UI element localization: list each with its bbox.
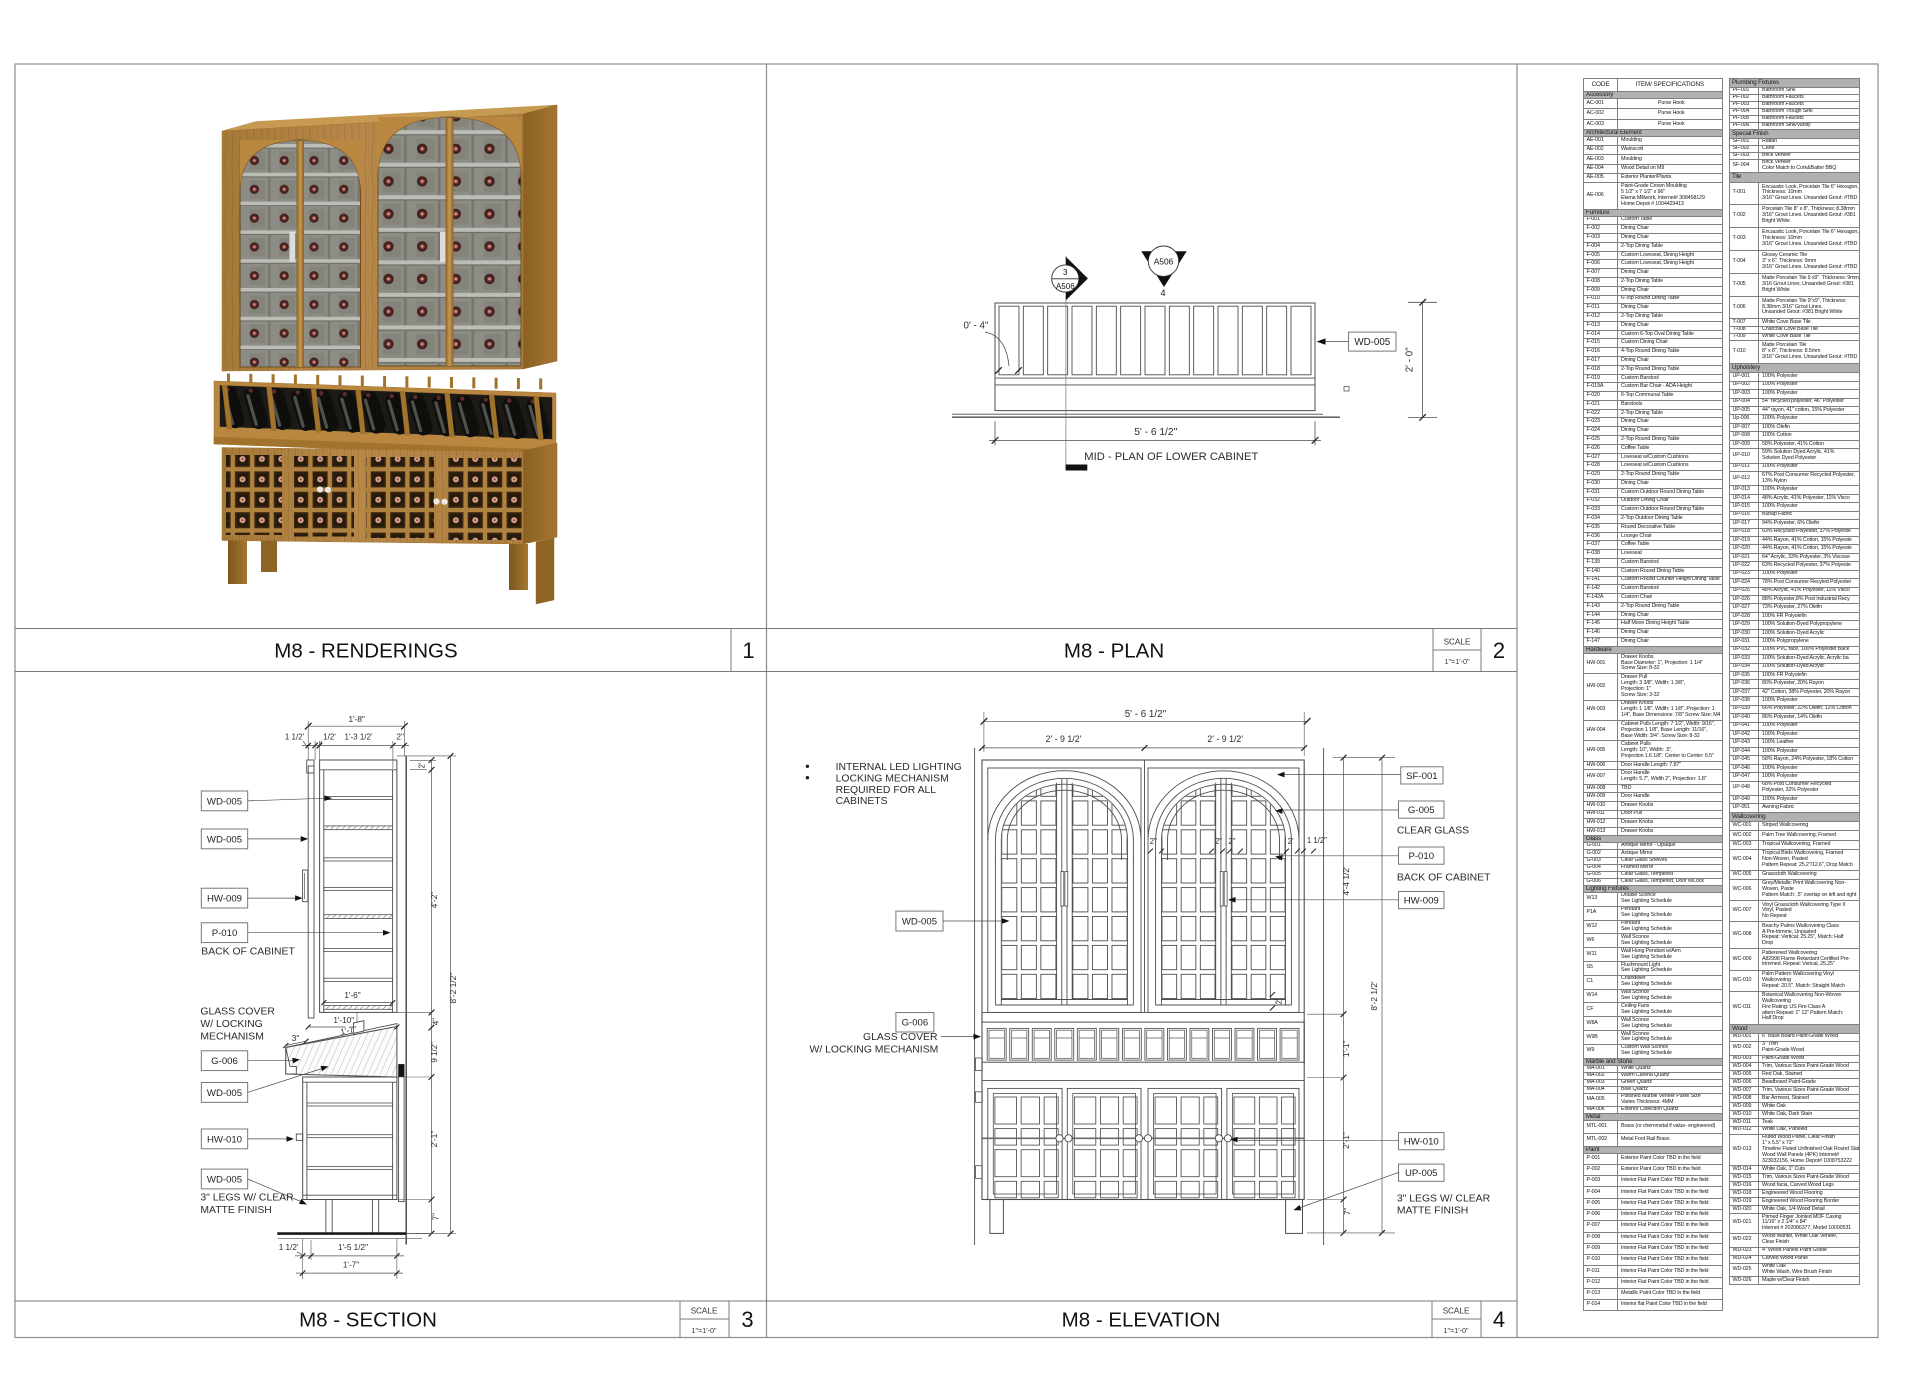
svg-text:P-010: P-010: [212, 928, 238, 939]
svg-text:SCALE: SCALE: [691, 1307, 718, 1316]
svg-text:W/ LOCKING: W/ LOCKING: [200, 1019, 262, 1030]
svg-text:1 1/2': 1 1/2': [285, 733, 305, 742]
svg-text:2'': 2'': [397, 733, 405, 742]
svg-text:SCALE: SCALE: [1443, 1307, 1470, 1316]
svg-text:WD-005: WD-005: [207, 1088, 242, 1099]
svg-text:1'-6": 1'-6": [344, 991, 360, 1000]
svg-text:G-006: G-006: [211, 1056, 238, 1067]
svg-text:INTERNAL LED LIGHTING: INTERNAL LED LIGHTING: [836, 762, 962, 773]
svg-text:BACK OF CABINET: BACK OF CABINET: [201, 947, 295, 958]
svg-text:2'-1'': 2'-1'': [429, 1130, 439, 1147]
svg-text:2' - 9 1/2': 2' - 9 1/2': [1207, 734, 1243, 744]
svg-text:WD-005: WD-005: [902, 916, 937, 927]
svg-text:2' - 0": 2' - 0": [1405, 347, 1416, 372]
svg-text:M8 - PLAN: M8 - PLAN: [1064, 640, 1164, 663]
svg-text:G-006: G-006: [902, 1018, 929, 1029]
svg-text:2'': 2'': [1215, 837, 1223, 846]
svg-text:2'': 2'': [1228, 837, 1236, 846]
svg-text:3" LEGS W/ CLEAR: 3" LEGS W/ CLEAR: [200, 1192, 294, 1203]
svg-text:REQUIRED FOR ALL: REQUIRED FOR ALL: [836, 785, 937, 796]
svg-text:CLEAR GLASS: CLEAR GLASS: [1397, 825, 1469, 836]
svg-text:1 1/2': 1 1/2': [279, 1243, 299, 1252]
svg-text:3: 3: [1063, 268, 1068, 277]
svg-text:P-010: P-010: [1408, 851, 1434, 862]
svg-text:1'-1": 1'-1": [1341, 1040, 1351, 1057]
svg-text:BACK OF CABINET: BACK OF CABINET: [1397, 873, 1491, 884]
svg-text:HW-010: HW-010: [1404, 1137, 1439, 1148]
svg-text:1'-5 1/2": 1'-5 1/2": [338, 1243, 368, 1252]
svg-text:MATTE FINISH: MATTE FINISH: [1397, 1206, 1468, 1217]
svg-text:8'-2 1/2'': 8'-2 1/2'': [448, 972, 458, 1003]
svg-text:MECHANISM: MECHANISM: [200, 1032, 264, 1043]
svg-text:2': 2': [1275, 998, 1284, 1004]
svg-text:1'-7": 1'-7": [343, 1261, 359, 1270]
svg-text:3: 3: [741, 1307, 753, 1332]
svg-text:M8 - SECTION: M8 - SECTION: [299, 1309, 437, 1332]
svg-text:4: 4: [1160, 288, 1165, 298]
svg-text:4'': 4'': [432, 1017, 441, 1025]
svg-text:2': 2': [418, 762, 427, 768]
svg-text:5' - 6 1/2'': 5' - 6 1/2'': [1134, 427, 1177, 438]
svg-text:4'-4 1/2': 4'-4 1/2': [1341, 866, 1351, 896]
svg-text:2'': 2'': [1150, 837, 1158, 846]
svg-text:1"=1'-0": 1"=1'-0": [1444, 657, 1470, 666]
svg-text:2': 2': [1288, 837, 1294, 846]
svg-text:UP-005: UP-005: [1405, 1168, 1438, 1179]
svg-text:4: 4: [1493, 1307, 1505, 1332]
svg-text:GLASS COVER: GLASS COVER: [200, 1007, 275, 1018]
svg-text:MID - PLAN OF LOWER CABINET: MID - PLAN OF LOWER CABINET: [1084, 451, 1258, 463]
svg-text:3" LEGS W/ CLEAR: 3" LEGS W/ CLEAR: [1397, 1194, 1491, 1205]
svg-text:WD-005: WD-005: [1354, 337, 1390, 348]
svg-text:1"=1'-0": 1"=1'-0": [1443, 1326, 1469, 1335]
svg-text:1: 1: [742, 638, 754, 663]
svg-text:WD-005: WD-005: [207, 796, 242, 807]
svg-text:M8 - RENDERINGS: M8 - RENDERINGS: [274, 640, 457, 663]
svg-text:7": 7": [1343, 1208, 1352, 1215]
svg-text:SF-001: SF-001: [1406, 771, 1437, 782]
svg-text:W/ LOCKING MECHANISM: W/ LOCKING MECHANISM: [810, 1044, 939, 1055]
svg-text:SCALE: SCALE: [1444, 638, 1471, 647]
svg-text:CABINETS: CABINETS: [836, 796, 888, 807]
svg-text:1"=1'-0": 1"=1'-0": [691, 1326, 717, 1335]
svg-text:1'-8": 1'-8": [349, 715, 365, 724]
svg-text:A506: A506: [1154, 257, 1174, 267]
svg-text:LOCKING MECHANISM: LOCKING MECHANISM: [836, 773, 949, 784]
svg-text:G-005: G-005: [1408, 805, 1435, 816]
svg-text:1 1/2'': 1 1/2'': [1307, 836, 1328, 845]
svg-text:3": 3": [292, 1034, 300, 1043]
svg-text:1/2': 1/2': [323, 733, 336, 742]
svg-text:5' - 6 1/2'': 5' - 6 1/2'': [1125, 709, 1167, 720]
svg-text:8'-2 1/2': 8'-2 1/2': [1369, 981, 1379, 1011]
svg-text:WD-005: WD-005: [207, 834, 242, 845]
svg-text:2: 2: [1493, 638, 1505, 663]
svg-text:0' - 4": 0' - 4": [964, 321, 989, 332]
svg-text:1'-3 1/2': 1'-3 1/2': [345, 733, 373, 742]
svg-text:2' - 9 1/2': 2' - 9 1/2': [1046, 734, 1082, 744]
svg-text:GLASS COVER: GLASS COVER: [863, 1032, 938, 1043]
svg-text:MATTE FINISH: MATTE FINISH: [200, 1205, 271, 1216]
svg-text:WD-005: WD-005: [207, 1174, 242, 1185]
svg-text:HW-010: HW-010: [207, 1134, 242, 1145]
svg-text:9 1/2": 9 1/2": [430, 1042, 439, 1063]
svg-text:HW-009: HW-009: [1404, 896, 1439, 907]
svg-text:HW-009: HW-009: [207, 894, 242, 905]
svg-text:4'-2": 4'-2": [429, 892, 439, 909]
svg-text:7'': 7'': [432, 1212, 441, 1220]
svg-text:M8 - ELEVATION: M8 - ELEVATION: [1062, 1309, 1221, 1332]
svg-text:A506: A506: [1056, 282, 1075, 291]
svg-text:1'-10": 1'-10": [333, 1016, 354, 1025]
